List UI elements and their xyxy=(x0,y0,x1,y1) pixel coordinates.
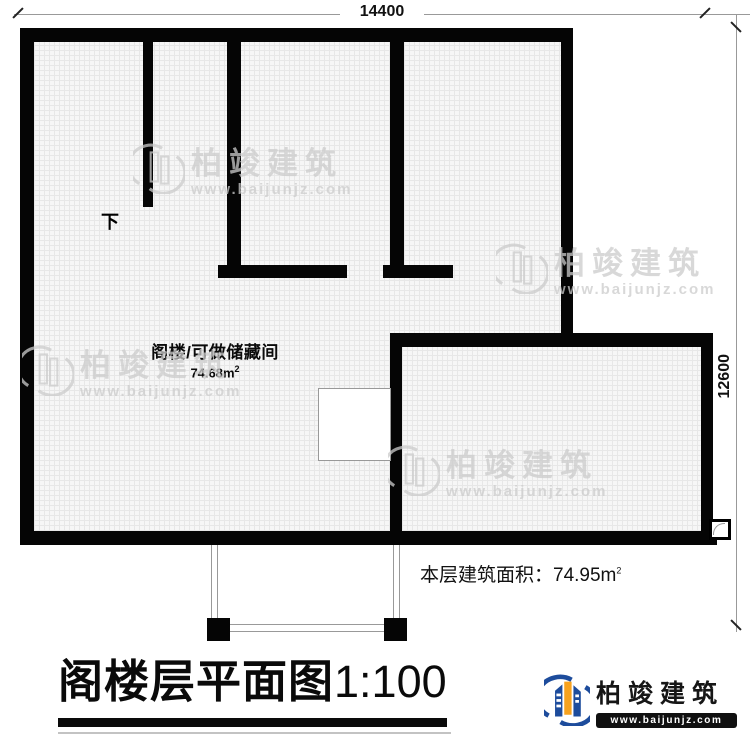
partition-wall-1 xyxy=(227,42,241,265)
dimension-tick-icon xyxy=(699,7,710,18)
partition-wall-2-flange xyxy=(383,265,453,278)
sheet-title-text: 阁楼层平面图 xyxy=(58,656,334,707)
wall-right-upper xyxy=(561,28,573,345)
porch-line-left xyxy=(211,545,218,618)
corner-arc xyxy=(713,523,725,535)
porch-column-left xyxy=(207,618,230,641)
title-underline-thin xyxy=(58,732,451,734)
floor-area-label: 本层建筑面积： xyxy=(420,565,553,586)
wall-top xyxy=(20,28,573,42)
sheet-title: 阁楼层平面图1:100 xyxy=(58,645,447,710)
right-dimension-line xyxy=(736,14,737,632)
company-logo: 柏竣建筑 www.baijunjz.com xyxy=(544,674,737,728)
floor-opening xyxy=(318,388,391,461)
top-dimension-label: 14400 xyxy=(340,3,424,21)
wall-left xyxy=(20,28,34,545)
company-logo-icon xyxy=(544,674,590,726)
porch-line-right xyxy=(393,545,400,618)
sheet-title-scale: 1:100 xyxy=(334,656,447,707)
wall-right-lower xyxy=(701,333,713,545)
room-divider-wall xyxy=(390,347,402,531)
wall-step-horizontal xyxy=(390,333,713,347)
partition-wall-2 xyxy=(390,42,404,265)
dimension-tick-icon xyxy=(12,7,23,18)
stair-enclosure-wall xyxy=(143,42,153,207)
room-area: 74.68m2 xyxy=(140,364,290,380)
lower-right-floor-area xyxy=(402,347,701,531)
right-dimension-label: 12600 xyxy=(716,350,734,403)
company-website: www.baijunjz.com xyxy=(596,713,737,728)
company-name: 柏竣建筑 xyxy=(596,674,737,710)
room-label: 阁楼/可做储藏间 74.68m2 xyxy=(140,338,290,380)
floor-area-note: 本层建筑面积：74.95m2 xyxy=(420,560,621,587)
room-name: 阁楼/可做储藏间 xyxy=(140,338,290,363)
partition-wall-1-flange xyxy=(218,265,347,278)
wall-bottom xyxy=(20,531,717,545)
stair-down-label: 下 xyxy=(101,208,119,234)
porch-column-right xyxy=(384,618,407,641)
floor-area-value: 74.95m xyxy=(553,565,616,586)
title-underline-thick xyxy=(58,718,447,727)
porch-beam xyxy=(230,624,384,632)
corner-feature xyxy=(709,519,731,540)
